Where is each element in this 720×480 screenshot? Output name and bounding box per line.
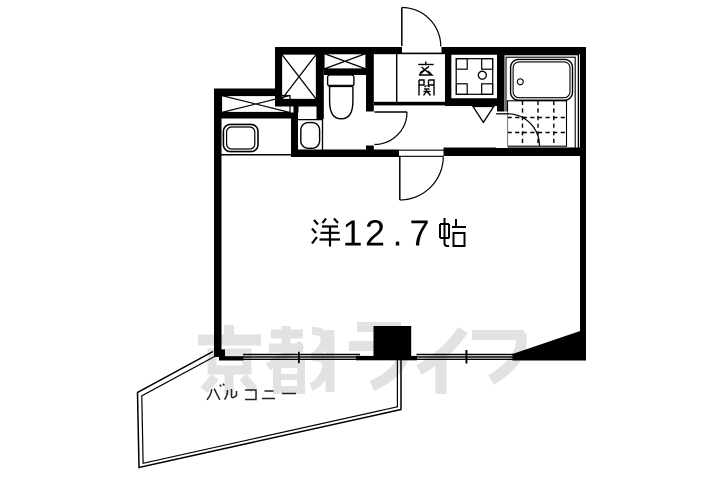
- svg-text:1: 1: [342, 213, 362, 254]
- svg-text:.: .: [392, 213, 402, 254]
- svg-text:2: 2: [365, 213, 385, 254]
- svg-text:7: 7: [409, 213, 429, 254]
